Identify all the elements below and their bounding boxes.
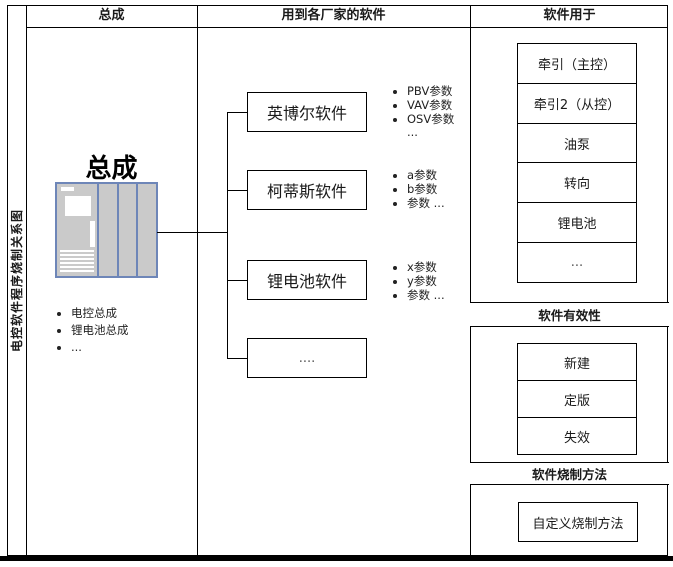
cabinet-window xyxy=(65,196,91,216)
cabinet-door-panel xyxy=(57,184,97,276)
burn-method-section-header: 软件烧制方法 xyxy=(470,462,669,485)
vendor-params-more-1: ... xyxy=(407,125,418,139)
validity-stack: 新建 定版 失效 xyxy=(517,343,637,455)
connector-trunk xyxy=(227,112,228,358)
diagram-title-vertical: 电控软件程序烧制关系图 xyxy=(8,209,25,352)
assembly-bullet: 锂电池总成 xyxy=(71,322,191,339)
bottom-thick-edge xyxy=(0,556,673,561)
usage-target: 油泵 xyxy=(518,123,636,163)
column-divider-1 xyxy=(197,5,198,556)
param-item: b参数 xyxy=(407,182,487,196)
vendor-box-label: 柯蒂斯软件 xyxy=(267,178,347,202)
assembly-bullet-list: 电控总成 锂电池总成 ... xyxy=(56,305,191,356)
param-item: PBV参数 xyxy=(407,84,487,98)
validity-item: 新建 xyxy=(518,344,636,380)
connector-stub-3 xyxy=(227,280,247,281)
column-header-vendors: 用到各厂家的软件 xyxy=(197,5,470,27)
vendor-box-label: 英博尔软件 xyxy=(267,100,347,124)
usage-target-more: ... xyxy=(518,242,636,282)
column-header-assembly: 总成 xyxy=(26,5,197,27)
header-row-divider xyxy=(26,27,668,28)
validity-section-header: 软件有效性 xyxy=(470,302,669,327)
connector-stub-1 xyxy=(227,112,247,113)
vendor-box-label: 锂电池软件 xyxy=(267,268,347,292)
connector-stub-2 xyxy=(227,190,247,191)
vendor-box-more: .... xyxy=(247,338,367,378)
vendor-box-label: .... xyxy=(299,351,316,366)
vendor-params-list-3: x参数 y参数 参数 ... xyxy=(392,260,487,302)
vendor-box-curtis: 柯蒂斯软件 xyxy=(247,170,367,210)
vendor-params-list-2: a参数 b参数 参数 ... xyxy=(392,168,487,210)
param-item: y参数 xyxy=(407,274,487,288)
burn-method-box: 自定义烧制方法 xyxy=(518,502,638,542)
side-strip-divider xyxy=(26,5,27,556)
usage-target: 锂电池 xyxy=(518,202,636,242)
validity-item: 定版 xyxy=(518,380,636,417)
assembly-title: 总成 xyxy=(26,148,197,185)
column-header-usage: 软件用于 xyxy=(470,5,669,27)
diagram-canvas: 电控软件程序烧制关系图 总成 用到各厂家的软件 软件用于 总成 电控总成 锂电池… xyxy=(0,0,673,567)
param-item: 参数 ... xyxy=(407,196,487,210)
cabinet-panel xyxy=(97,184,117,276)
cabinet-illustration xyxy=(55,182,158,278)
param-item: a参数 xyxy=(407,168,487,182)
assembly-bullet: ... xyxy=(71,339,191,356)
param-item: 参数 ... xyxy=(407,288,487,302)
connector-stub-4 xyxy=(227,358,247,359)
assembly-bullet: 电控总成 xyxy=(71,305,191,322)
usage-target: 转向 xyxy=(518,162,636,202)
vendor-params-list-1: PBV参数 VAV参数 OSV参数 xyxy=(392,84,487,126)
vendor-box-enpower: 英博尔软件 xyxy=(247,92,367,132)
usage-target: 牵引（主控） xyxy=(518,44,636,83)
usage-targets-stack: 牵引（主控） 牵引2（从控） 油泵 转向 锂电池 ... xyxy=(517,43,637,283)
cabinet-handle xyxy=(90,221,95,247)
cabinet-label-plate xyxy=(61,187,74,191)
validity-item: 失效 xyxy=(518,417,636,454)
burn-method-label: 自定义烧制方法 xyxy=(532,513,623,532)
cabinet-panel xyxy=(136,184,156,276)
vendor-box-lithium: 锂电池软件 xyxy=(247,260,367,300)
cabinet-panel xyxy=(117,184,137,276)
diagram-side-strip: 电控软件程序烧制关系图 xyxy=(7,5,26,556)
param-item: VAV参数 xyxy=(407,98,487,112)
param-item: OSV参数 xyxy=(407,112,487,126)
cabinet-vents xyxy=(60,248,94,272)
param-item: x参数 xyxy=(407,260,487,274)
connector-feed xyxy=(157,232,227,233)
usage-target: 牵引2（从控） xyxy=(518,83,636,123)
